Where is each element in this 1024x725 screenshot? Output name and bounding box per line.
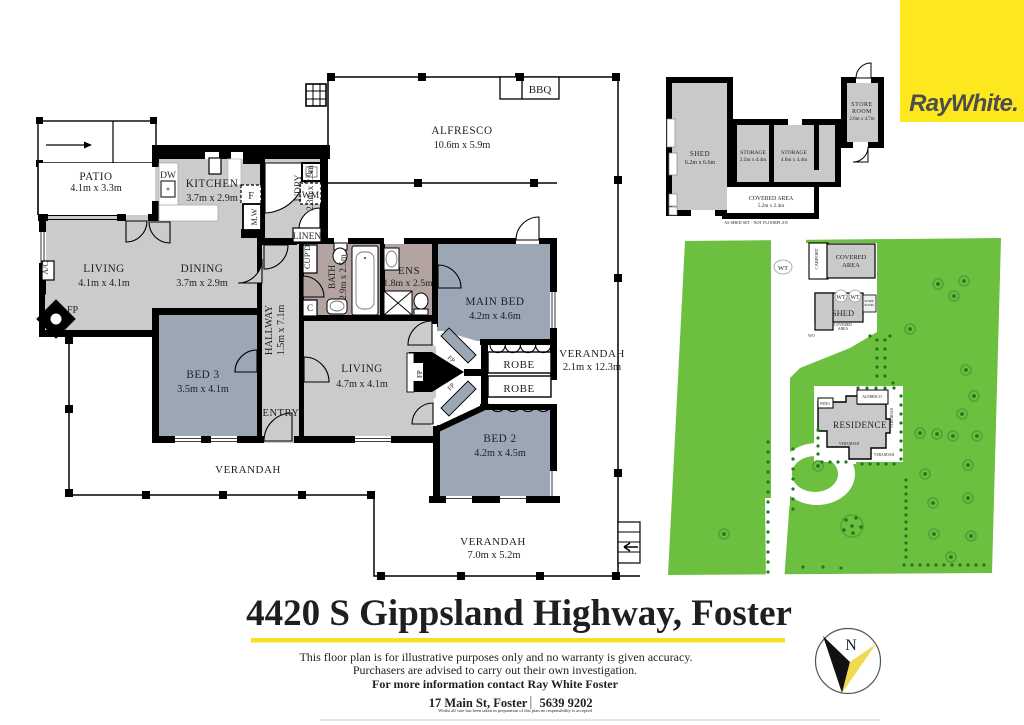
svg-text:F: F	[248, 191, 254, 202]
svg-text:7.0m x 5.2m: 7.0m x 5.2m	[467, 550, 520, 561]
svg-text:4.2m x 4.6m: 4.2m x 4.6m	[469, 311, 521, 322]
svg-text:WT: WT	[850, 295, 860, 301]
svg-text:Whilst all care has been taken: Whilst all care has been taken in prepar…	[438, 708, 592, 713]
svg-text:10.6m x 5.9m: 10.6m x 5.9m	[434, 140, 491, 151]
svg-text:RESIDENCE: RESIDENCE	[833, 420, 887, 430]
svg-text:L'DRY: L'DRY	[294, 174, 304, 201]
svg-text:M.W: M.W	[250, 208, 259, 225]
svg-text:STORE: STORE	[851, 102, 872, 108]
svg-text:ROOM: ROOM	[864, 303, 873, 307]
svg-text:AS SHED SET - NOT FLOORPLAN: AS SHED SET - NOT FLOORPLAN	[724, 220, 787, 225]
svg-text:PATIO: PATIO	[820, 402, 830, 406]
svg-text:ROOM: ROOM	[852, 109, 872, 115]
svg-text:2.9m x 2.5m: 2.9m x 2.5m	[338, 254, 348, 300]
svg-text:VERANDAH: VERANDAH	[215, 464, 281, 476]
svg-text:1.8m x 2.5m: 1.8m x 2.5m	[383, 278, 433, 289]
svg-text:BED 3: BED 3	[186, 369, 219, 381]
svg-text:STORAGE: STORAGE	[781, 150, 807, 156]
svg-text:C: C	[307, 303, 313, 313]
svg-text:2.6m x 4.7m: 2.6m x 4.7m	[849, 117, 874, 122]
svg-text:AREA: AREA	[842, 262, 860, 269]
svg-text:MAIN BED: MAIN BED	[465, 296, 524, 308]
svg-text:DW: DW	[160, 171, 176, 181]
svg-text:4.2m x 4.5m: 4.2m x 4.5m	[474, 448, 526, 459]
svg-text:FP: FP	[67, 305, 79, 316]
svg-text:3.7m x 2.9m: 3.7m x 2.9m	[186, 193, 238, 204]
svg-text:3.5m x 4.1m: 3.5m x 4.1m	[177, 384, 229, 395]
svg-text:WO: WO	[808, 333, 815, 338]
svg-text:ROBE: ROBE	[503, 359, 534, 371]
svg-text:RayWhite.: RayWhite.	[909, 90, 1018, 117]
svg-text:4.6m x 4.4m: 4.6m x 4.4m	[781, 157, 807, 163]
svg-text:ALFRESCO: ALFRESCO	[862, 395, 882, 399]
svg-text:SHED: SHED	[832, 308, 854, 318]
svg-text:A/C: A/C	[41, 261, 50, 274]
svg-text:Purchasers are advised to carr: Purchasers are advised to carry out thei…	[353, 663, 637, 677]
svg-text:4420 S Gippsland Highway, Fost: 4420 S Gippsland Highway, Foster	[246, 593, 792, 634]
svg-text:2.1m x 12.3m: 2.1m x 12.3m	[563, 362, 621, 373]
svg-text:SHED: SHED	[690, 150, 710, 158]
svg-text:2.3m x 2.9m: 2.3m x 2.9m	[305, 165, 315, 211]
svg-text:LINEN: LINEN	[293, 232, 322, 242]
svg-text:HALLWAY: HALLWAY	[264, 305, 275, 356]
svg-text:FP: FP	[416, 370, 424, 378]
svg-text:2.5m x 4.4m: 2.5m x 4.4m	[740, 157, 766, 163]
svg-text:WT: WT	[836, 295, 846, 301]
svg-text:1.5m x 7.1m: 1.5m x 7.1m	[276, 305, 287, 356]
svg-text:BED 2: BED 2	[483, 433, 516, 445]
svg-text:ALFRESCO: ALFRESCO	[431, 125, 492, 137]
svg-text:N: N	[845, 637, 857, 654]
svg-text:KITCHEN: KITCHEN	[186, 178, 239, 190]
svg-text:VERANDAH: VERANDAH	[839, 442, 860, 446]
svg-text:VERANDAH: VERANDAH	[559, 348, 625, 360]
svg-text:4.7m x 4.1m: 4.7m x 4.1m	[336, 379, 388, 390]
svg-text:CARPORT: CARPORT	[814, 248, 819, 269]
svg-text:COVERED: COVERED	[836, 254, 867, 261]
svg-text:This floor plan is for illustr: This floor plan is for illustrative purp…	[299, 650, 692, 664]
svg-text:5.2m x 2.4m: 5.2m x 2.4m	[758, 203, 784, 209]
svg-text:COVERED AREA: COVERED AREA	[749, 196, 794, 202]
svg-text:4.1m x 3.3m: 4.1m x 3.3m	[70, 183, 122, 194]
svg-text:6.2m x 6.6m: 6.2m x 6.6m	[685, 160, 716, 166]
svg-text:VERANDAH: VERANDAH	[460, 536, 526, 548]
svg-text:3.7m x 2.9m: 3.7m x 2.9m	[176, 278, 228, 289]
svg-text:ENTRY: ENTRY	[263, 408, 300, 419]
svg-text:BBQ: BBQ	[529, 84, 552, 96]
svg-text:4.1m x 4.1m: 4.1m x 4.1m	[78, 278, 130, 289]
svg-text:WT: WT	[778, 265, 788, 272]
svg-text:LIVING: LIVING	[83, 263, 125, 275]
svg-text:ROBE: ROBE	[503, 383, 534, 395]
svg-text:CUP'D: CUP'D	[302, 245, 312, 269]
svg-text:STORAGE: STORAGE	[740, 150, 766, 156]
svg-text:AREA: AREA	[838, 327, 849, 331]
svg-text:VERANDAH: VERANDAH	[890, 408, 894, 429]
svg-text:BATH: BATH	[327, 265, 337, 289]
svg-text:DINING: DINING	[181, 263, 224, 275]
svg-text:PATIO: PATIO	[79, 171, 112, 183]
svg-text:VERANDAH: VERANDAH	[874, 453, 895, 457]
svg-text:LIVING: LIVING	[341, 363, 383, 375]
svg-text:ENS: ENS	[398, 265, 420, 277]
svg-text:For more information contact R: For more information contact Ray White F…	[372, 677, 619, 691]
